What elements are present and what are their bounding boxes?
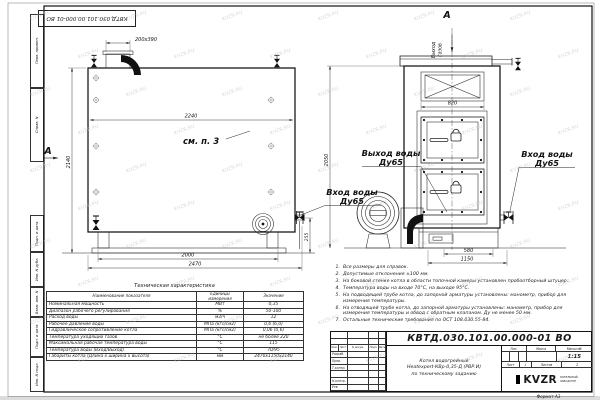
dim-2470: 2470 <box>189 262 202 268</box>
dim-2000: 2000 <box>182 253 195 259</box>
front-view: А Выход газов 820 <box>301 10 575 266</box>
collar-valve <box>515 58 521 70</box>
air-valve-left <box>91 55 97 67</box>
note-item: 4.Температура воды на входе 70°С, на вых… <box>332 286 590 292</box>
sheets-label: Листов <box>532 362 563 368</box>
gas-out-label-2: газов <box>439 43 444 57</box>
lower-door <box>421 169 484 215</box>
upper-door <box>421 117 484 163</box>
explosion-hatch <box>421 72 484 101</box>
sheet-value: 1 <box>520 362 532 368</box>
logo-text: KVZR <box>523 374 557 386</box>
tech-table-header-row: Наименование показателяЕдиницы измерения… <box>47 292 304 302</box>
air-valve-right <box>274 55 280 67</box>
water-out-dn: Ду65 <box>378 157 403 167</box>
note-item: 1.Все размеры для справок. <box>332 265 590 271</box>
tech-characteristics: Техническая характеристика Наименование … <box>46 283 303 361</box>
water-in-right-dn: Ду65 <box>534 158 559 168</box>
tech-table-row: Габариты котла (Длина х ширина х высота)… <box>47 354 304 361</box>
dim-2050: 2050 <box>324 154 330 167</box>
water-in-left-dn: Ду65 <box>339 196 364 206</box>
dim-2240: 2240 <box>185 114 198 120</box>
base-frame <box>419 228 498 248</box>
door-handle <box>430 191 448 194</box>
drawing-sheet: 2240 200х390 2140 2000 2470 255 А см. п.… <box>0 0 600 400</box>
signature-row: Утв. <box>331 385 386 392</box>
dim-820: 820 <box>448 101 458 107</box>
see-note-label: см. п. 3 <box>183 137 219 147</box>
product-title: Котел водогрейный Heatexpert-КВр-0,35-Д … <box>386 346 501 391</box>
title-block-doc-number: КВТД.030.101.00.000-01 ВО <box>386 332 592 346</box>
logo-caption: КОТЕЛЬНЫЙ ЗАВОД РЭП <box>560 376 578 383</box>
product-title-line: по техническому заданию <box>411 372 476 379</box>
duct-elbow <box>407 214 423 244</box>
dim-255: 255 <box>304 233 310 242</box>
section-marker-side: А <box>43 146 51 157</box>
notes-list: 1.Все размеры для справок.2.Допустимые о… <box>332 265 590 326</box>
tech-table-title: Техническая характеристика <box>46 283 303 289</box>
sheet-label: Лист <box>502 362 520 368</box>
door-lock-icon <box>451 181 461 193</box>
product-title-line: Heatexpert-КВр-0,35-Д (РВР.И) <box>407 365 481 372</box>
gas-out-label-1: Выход <box>431 41 437 58</box>
note-item: 5.На подводящей трубе котла, до запорной… <box>332 293 590 304</box>
note-item: 2.Допустимые отклонения ±100 мм. <box>332 272 590 278</box>
door-lock-icon <box>451 129 461 141</box>
logo-block-icon <box>516 375 520 384</box>
lit-cells <box>502 352 527 362</box>
format-label: Формат А3 <box>505 393 592 400</box>
dim-1150: 1150 <box>461 257 474 263</box>
scale-value: 1:15 <box>557 352 592 362</box>
note-item: 3.На боковой стенке котла в области топо… <box>332 279 590 285</box>
flue-elbow <box>121 55 141 75</box>
section-marker-front: А <box>442 10 450 21</box>
title-block-signature-grid: Изм.ЛистN докум.Подп.ДатаРазраб.Пров.Т.к… <box>331 332 386 391</box>
note-item: 7.Остальные технические требования по ОС… <box>332 318 590 324</box>
title-block: Изм.ЛистN докум.Подп.ДатаРазраб.Пров.Т.к… <box>330 331 592 392</box>
side-view: 2240 200х390 2140 2000 2470 255 А см. п.… <box>43 37 315 271</box>
sheets-value: 2 <box>562 362 592 368</box>
inlet-valve-side <box>295 211 305 249</box>
drain-valve <box>93 216 100 230</box>
dim-580: 580 <box>464 248 474 254</box>
kvzr-logo: KVZR КОТЕЛЬНЫЙ ЗАВОД РЭП <box>502 368 592 391</box>
doc-number-stamp: КВТД.030.101.00.000-01 ВО <box>38 10 136 27</box>
tech-table: Наименование показателяЕдиницы измерения… <box>46 291 304 361</box>
title-block-right: Лит. Масса Масштаб 1:15 Лист 1 Листов 2 … <box>501 346 592 391</box>
door-handle <box>430 139 448 142</box>
inlet-valve-front <box>500 211 514 224</box>
burner-flange <box>253 214 274 235</box>
mass-value <box>527 352 557 362</box>
dim-flue: 200х390 <box>135 37 157 43</box>
dim-2140: 2140 <box>66 156 72 169</box>
note-item: 6.На отводящей трубе котла, до запорной … <box>332 306 590 317</box>
